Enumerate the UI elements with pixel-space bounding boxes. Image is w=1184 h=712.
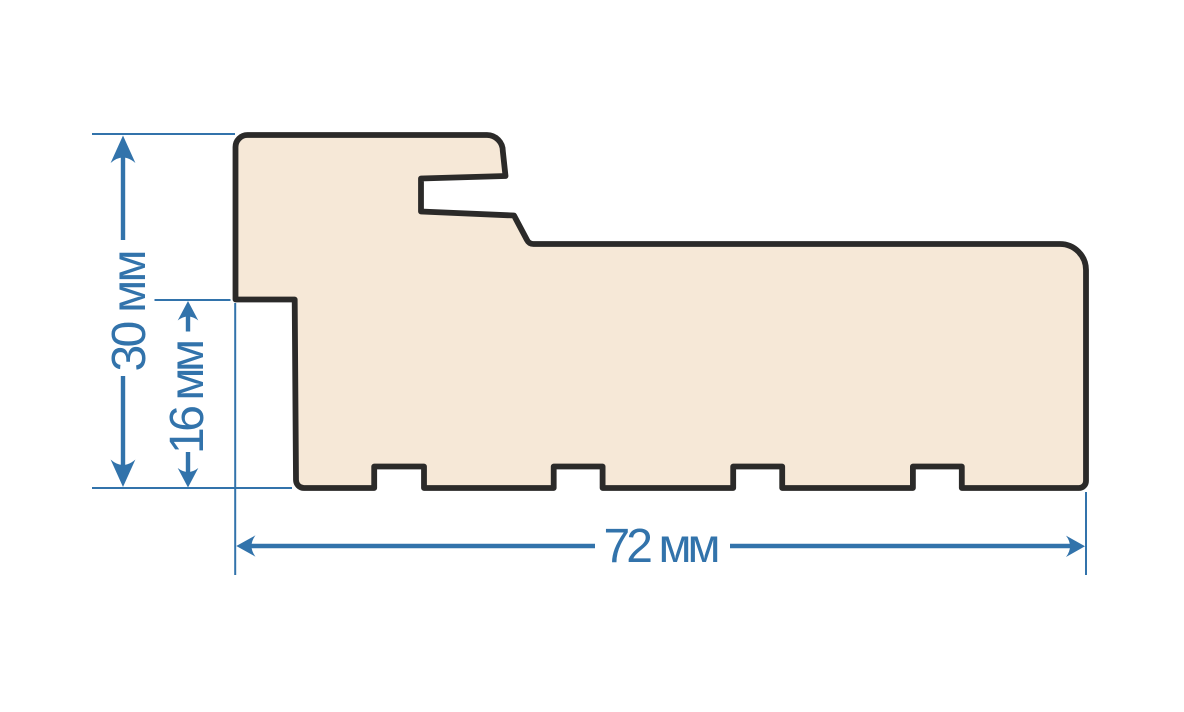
svg-text:30 мм: 30 мм — [103, 250, 156, 372]
svg-text:16 мм: 16 мм — [161, 339, 214, 454]
svg-text:72 мм: 72 мм — [604, 520, 721, 573]
